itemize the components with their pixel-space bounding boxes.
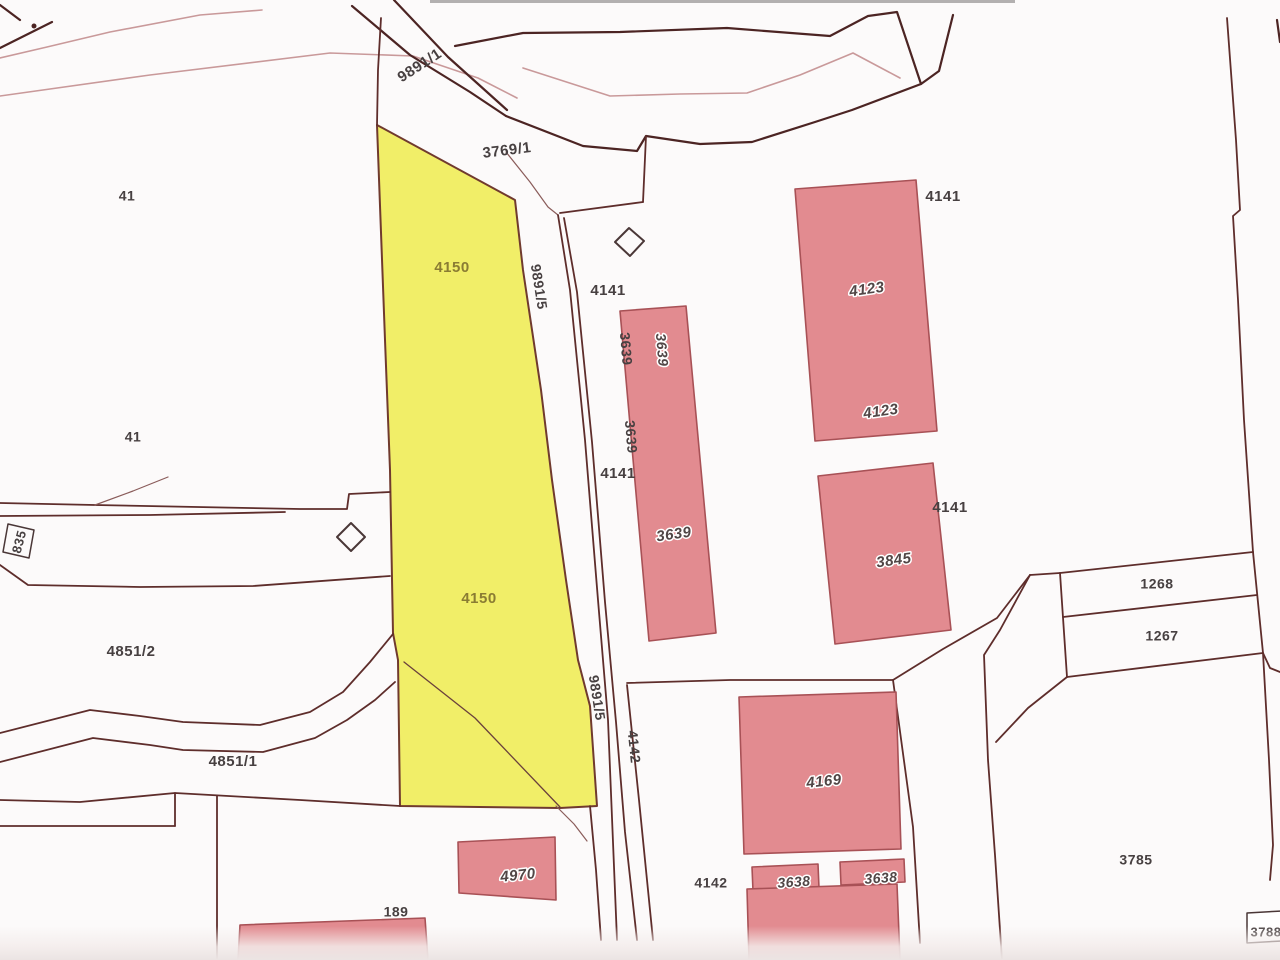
parcel-1267-bottom (1067, 653, 1263, 677)
label-parcel-1268: 1268 (1140, 576, 1173, 592)
road-9891-5-east-line-1 (558, 215, 617, 940)
boundary-west-branch (95, 477, 168, 505)
boundary-west-horizontal-1a (0, 492, 390, 509)
fan-line-topleft-b (0, 22, 52, 48)
boundary-curve-southeast (984, 575, 1030, 960)
fan-line-topleft-a (0, 5, 20, 20)
image-bottom-fade (0, 926, 1280, 960)
label-parcel-189: 189 (384, 904, 409, 920)
parcel-4150-tip-line (377, 18, 381, 125)
building-4123 (795, 180, 937, 441)
cadastral-map: 9891/13769/141414141509891/5414136393639… (0, 0, 1280, 960)
survey-point-topleft (32, 24, 37, 29)
boundary-3769-drop (643, 136, 646, 202)
label-parcel-4851-1: 4851/1 (209, 753, 258, 770)
label-parcel-4851-2: 4851/2 (107, 643, 156, 660)
boundary-right-edge-down (1263, 653, 1273, 880)
label-parcel-4150-lower: 4150 (461, 590, 496, 607)
label-parcel-41-north: 41 (119, 188, 136, 204)
boundary-southwest-step-top (0, 793, 400, 806)
label-parcel-4141-east: 4141 (932, 499, 967, 516)
parcel-1268-right (1253, 552, 1263, 653)
parcel-1268-left (1060, 573, 1067, 677)
boundary-west-horizontal-2 (0, 565, 390, 587)
label-building-3638-right: 3638 (864, 869, 898, 887)
label-parcel-4142-rotated: 4142 (625, 730, 644, 765)
boundary-4141-4142 (627, 680, 893, 683)
label-building-3639-upper: 3639 (653, 333, 672, 367)
label-3639-edge-upper: 3639 (617, 332, 636, 366)
top-band-inner-light (523, 53, 900, 96)
parcel-4150-highlight (377, 125, 597, 808)
label-road-9891-5-upper: 9891/5 (528, 263, 551, 311)
label-parcel-3769-1: 3769/1 (482, 139, 533, 162)
label-parcel-41-south: 41 (125, 429, 142, 445)
marker-diamond-north (615, 228, 644, 256)
parcel-1268-1267-divider (1063, 595, 1257, 617)
label-parcel-835: 835 (9, 529, 29, 555)
label-3639-edge-lower: 3639 (622, 420, 641, 454)
road-left-edge-extension (590, 806, 601, 940)
boundary-3769-step (560, 202, 643, 213)
boundary-1267-connector (996, 677, 1067, 742)
label-parcel-4142: 4142 (694, 875, 727, 891)
map-canvas: 9891/13769/141414141509891/5414136393639… (0, 0, 1280, 960)
label-parcel-4141-mid-upper: 4141 (590, 282, 625, 299)
parcel-1268-top (1060, 552, 1253, 573)
scan-artifact-top-strip (430, 0, 1015, 3)
path-4851-upper (0, 634, 393, 733)
label-parcel-3785: 3785 (1119, 852, 1152, 868)
label-building-3638-left: 3638 (777, 873, 811, 891)
parcel-1268-top-connector (1030, 573, 1060, 575)
boundary-west-horizontal-1b (0, 512, 285, 516)
top-band-upper-boundary (455, 12, 953, 84)
marker-diamond-west (337, 523, 365, 551)
label-parcel-4150-upper: 4150 (434, 259, 469, 276)
parcel-4142-west-line (627, 685, 653, 940)
label-parcel-4141-mid-lower: 4141 (600, 465, 635, 482)
road-corner-curve (556, 806, 587, 841)
label-parcel-9891-1: 9891/1 (395, 45, 445, 86)
label-parcel-1267: 1267 (1145, 628, 1178, 644)
label-parcel-4141-northeast: 4141 (925, 188, 960, 205)
fan-line-topleft-light-1 (0, 10, 262, 58)
boundary-right-edge-short (1263, 653, 1280, 672)
boundary-right-vertical (1227, 18, 1253, 552)
